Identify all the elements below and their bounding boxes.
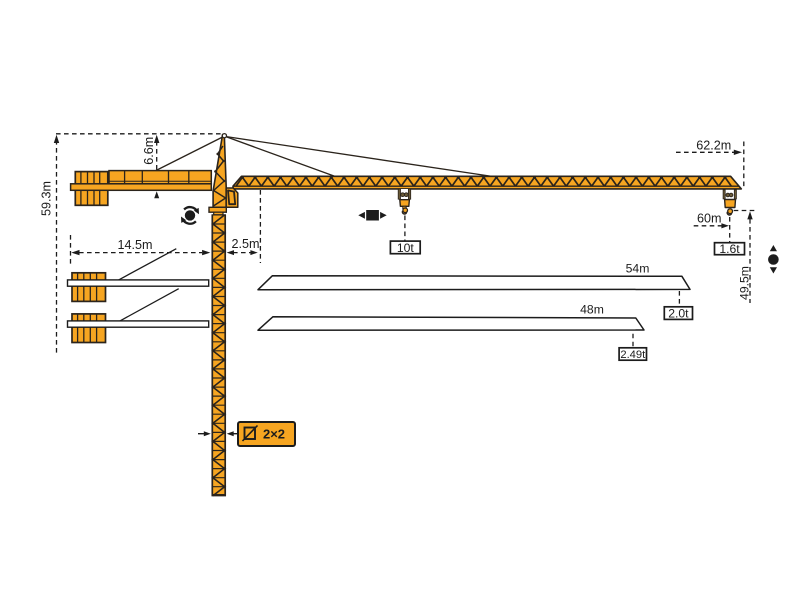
svg-text:54m: 54m bbox=[626, 262, 650, 276]
svg-text:60m: 60m bbox=[697, 211, 722, 225]
svg-text:2.0t: 2.0t bbox=[668, 307, 689, 321]
svg-text:14.5m: 14.5m bbox=[117, 238, 152, 252]
svg-text:59.3m: 59.3m bbox=[40, 181, 54, 216]
svg-text:2.5m: 2.5m bbox=[232, 237, 260, 251]
svg-text:2.49t: 2.49t bbox=[620, 349, 646, 361]
svg-text:1.6t: 1.6t bbox=[719, 242, 740, 256]
svg-text:2×2: 2×2 bbox=[263, 426, 285, 441]
svg-text:10t: 10t bbox=[397, 241, 415, 255]
svg-text:62.2m: 62.2m bbox=[696, 138, 731, 152]
svg-text:49.5m: 49.5m bbox=[737, 266, 751, 300]
svg-text:6.6m: 6.6m bbox=[142, 137, 156, 165]
svg-text:48m: 48m bbox=[580, 303, 604, 317]
